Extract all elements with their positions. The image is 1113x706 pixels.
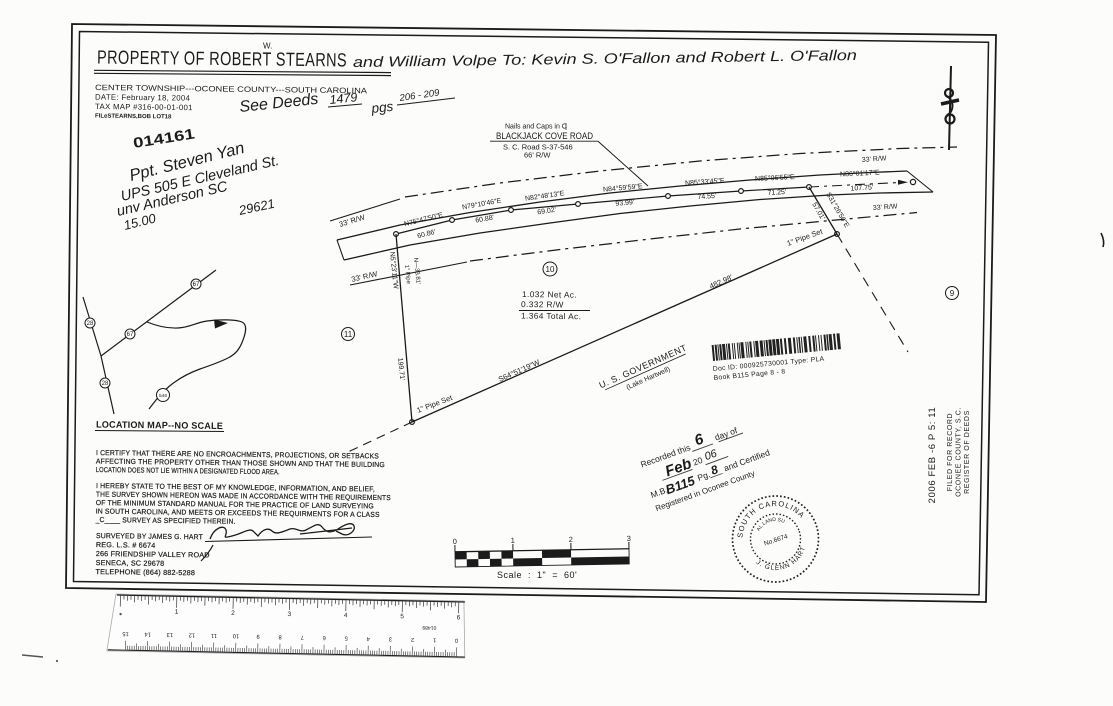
svg-text:9: 9 bbox=[950, 289, 955, 298]
svg-text:pgs: pgs bbox=[370, 99, 394, 116]
svg-text:TELEPHONE (864) 882-5288: TELEPHONE (864) 882-5288 bbox=[96, 567, 196, 577]
svg-text:6: 6 bbox=[692, 430, 706, 449]
svg-text:SOUTH CAROLINA: SOUTH CAROLINA bbox=[727, 489, 808, 541]
svg-text:4: 4 bbox=[344, 612, 348, 619]
svg-text:13: 13 bbox=[167, 631, 174, 637]
svg-text:DATE: February 18, 2004: DATE: February 18, 2004 bbox=[95, 93, 191, 103]
svg-text:28: 28 bbox=[87, 321, 94, 327]
svg-text:1: 1 bbox=[175, 609, 179, 616]
svg-text:14: 14 bbox=[144, 631, 151, 637]
svg-text:N86°01'17"E: N86°01'17"E bbox=[840, 168, 880, 178]
svg-text:day of: day of bbox=[713, 425, 739, 443]
svg-text:71.25': 71.25' bbox=[767, 189, 786, 197]
svg-text:8: 8 bbox=[709, 462, 720, 478]
svg-text:12: 12 bbox=[189, 631, 196, 637]
svg-text:S64°51'19"W: S64°51'19"W bbox=[497, 357, 542, 384]
svg-text:199.71': 199.71' bbox=[396, 357, 405, 380]
svg-text:and Certified: and Certified bbox=[722, 447, 771, 473]
svg-text:0: 0 bbox=[455, 637, 458, 643]
svg-text:1" Pipe: 1" Pipe bbox=[403, 265, 411, 285]
svg-text:Nails and Caps in C: Nails and Caps in C bbox=[505, 124, 567, 131]
svg-text:5: 5 bbox=[400, 613, 404, 620]
svg-text:2: 2 bbox=[569, 535, 573, 544]
svg-text:Pg.: Pg. bbox=[696, 469, 711, 483]
svg-text:J. GLENN HART: J. GLENN HART bbox=[753, 544, 812, 579]
svg-text:1: 1 bbox=[433, 636, 436, 642]
svg-text:LOCATION MAP--NO SCALE: LOCATION MAP--NO SCALE bbox=[96, 420, 223, 432]
svg-text:11: 11 bbox=[344, 330, 353, 339]
svg-text:014161: 014161 bbox=[132, 126, 196, 152]
svg-text:29621: 29621 bbox=[237, 196, 276, 218]
svg-text:3: 3 bbox=[287, 611, 291, 618]
svg-text:LOCATION DOES NOT LIE WITHIN A: LOCATION DOES NOT LIE WITHIN A DESIGNATE… bbox=[96, 465, 280, 476]
svg-text:S31°26'50"E: S31°26'50"E bbox=[824, 191, 851, 229]
svg-text:33' R/W: 33' R/W bbox=[873, 203, 898, 212]
svg-text:28: 28 bbox=[102, 381, 109, 387]
svg-text:1: 1 bbox=[511, 536, 515, 545]
svg-text:AL LAND SU: AL LAND SU bbox=[754, 513, 788, 534]
svg-text:9: 9 bbox=[256, 633, 259, 639]
svg-text:7: 7 bbox=[301, 634, 304, 640]
svg-text:15: 15 bbox=[122, 630, 129, 636]
svg-text:1.364 Total Ac.: 1.364 Total Ac. bbox=[521, 311, 581, 322]
svg-text:N75°47'50"E: N75°47'50"E bbox=[403, 211, 444, 228]
svg-text:107.75': 107.75' bbox=[850, 184, 873, 192]
svg-text:60.86': 60.86' bbox=[417, 229, 437, 240]
svg-text:Scale : 1" = 60': Scale : 1" = 60' bbox=[497, 570, 577, 580]
svg-text:N—33.81': N—33.81' bbox=[412, 258, 421, 285]
svg-text:10: 10 bbox=[546, 265, 555, 274]
svg-text:93.99': 93.99' bbox=[615, 199, 634, 208]
svg-text:3: 3 bbox=[627, 534, 631, 543]
svg-text:20: 20 bbox=[692, 455, 705, 468]
svg-text:BLACKJACK COVE ROAD: BLACKJACK COVE ROAD bbox=[496, 131, 593, 142]
svg-text:482.98': 482.98' bbox=[708, 272, 734, 290]
svg-text:and William Volpe To: Kevin S: and William Volpe To: Kevin S. O'Fallon … bbox=[353, 48, 857, 71]
svg-text:N84°59'59"E: N84°59'59"E bbox=[603, 182, 644, 193]
svg-text:No.6674: No.6674 bbox=[763, 533, 789, 547]
svg-text:W.: W. bbox=[263, 42, 272, 51]
svg-text:REGISTER OF DEEDS: REGISTER OF DEEDS bbox=[964, 410, 971, 494]
svg-text:206 - 209: 206 - 209 bbox=[398, 87, 441, 104]
svg-text:2: 2 bbox=[411, 636, 414, 642]
svg-text:N85°06'55"E: N85°06'55"E bbox=[755, 173, 795, 183]
svg-text:6: 6 bbox=[457, 614, 461, 621]
svg-text:3: 3 bbox=[389, 635, 392, 641]
svg-text:74.55': 74.55' bbox=[697, 193, 716, 201]
svg-text:1.032 Net Ac.: 1.032 Net Ac. bbox=[522, 289, 577, 300]
svg-text:66' R/W: 66' R/W bbox=[524, 151, 551, 160]
svg-text:5: 5 bbox=[345, 635, 348, 641]
svg-text:2006 FEB -6 P 5: 11: 2006 FEB -6 P 5: 11 bbox=[927, 407, 938, 504]
svg-text:N85°33'45"E: N85°33'45"E bbox=[685, 177, 725, 188]
svg-text:10: 10 bbox=[233, 632, 240, 638]
svg-text:2: 2 bbox=[231, 610, 235, 617]
svg-text:FILED FOR RECORD: FILED FOR RECORD bbox=[947, 413, 954, 491]
svg-text:FILeSTEARNS,BOB LOT18: FILeSTEARNS,BOB LOT18 bbox=[95, 114, 172, 121]
svg-text:1" Pipe Set: 1" Pipe Set bbox=[786, 226, 825, 248]
svg-text:6: 6 bbox=[323, 634, 326, 640]
svg-text:546: 546 bbox=[159, 393, 167, 399]
svg-text:67: 67 bbox=[127, 332, 134, 338]
svg-text:11: 11 bbox=[211, 632, 217, 638]
svg-text:69.02': 69.02' bbox=[537, 207, 557, 217]
svg-text:TAX MAP #316-00-01-001: TAX MAP #316-00-01-001 bbox=[95, 102, 193, 112]
svg-text:PROPERTY OF ROBERT STEARNS: PROPERTY OF ROBERT STEARNS bbox=[97, 48, 347, 72]
svg-text:OCONEE COUNTY, S.C.: OCONEE COUNTY, S.C. bbox=[956, 407, 963, 497]
svg-text:_C____ SURVEY AS SPECIFIED THE: _C____ SURVEY AS SPECIFIED THEREIN. bbox=[95, 515, 236, 526]
svg-text:See Deeds: See Deeds bbox=[239, 91, 320, 116]
svg-text:33' R/W: 33' R/W bbox=[338, 212, 367, 229]
svg-text:0: 0 bbox=[453, 537, 457, 546]
svg-text:33' R/W: 33' R/W bbox=[862, 155, 887, 164]
svg-text:01489: 01489 bbox=[422, 624, 436, 630]
svg-text:67: 67 bbox=[193, 282, 200, 288]
svg-text:8: 8 bbox=[278, 633, 281, 639]
svg-text:0.332 R/W: 0.332 R/W bbox=[521, 299, 564, 310]
